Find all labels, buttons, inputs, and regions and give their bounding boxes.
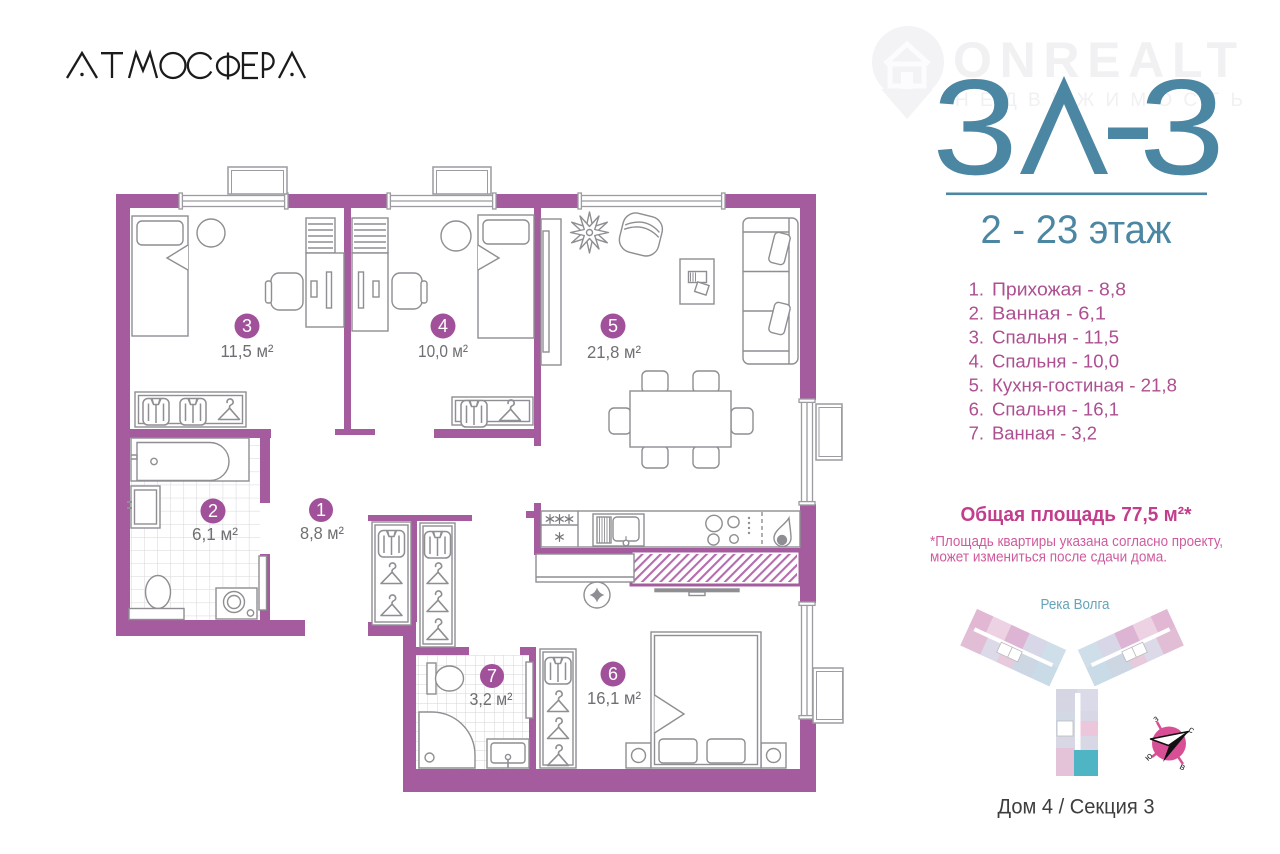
svg-text:Дом 4 / Секция 3: Дом 4 / Секция 3: [998, 795, 1155, 819]
svg-text:Общая площадь 77,5 м²*: Общая площадь 77,5 м²*: [961, 503, 1192, 526]
svg-text:Спальня - 16,1: Спальня - 16,1: [992, 399, 1119, 420]
svg-text:6: 6: [608, 664, 618, 684]
svg-text:8,8 м²: 8,8 м²: [300, 523, 344, 543]
svg-text:1: 1: [316, 500, 326, 520]
svg-text:3: 3: [932, 51, 1018, 203]
svg-text:может измениться после сдачи д: может измениться после сдачи дома.: [930, 550, 1167, 566]
svg-text:10,0 м²: 10,0 м²: [418, 341, 468, 361]
svg-text:Спальня - 11,5: Спальня - 11,5: [992, 327, 1119, 348]
svg-text:5: 5: [608, 316, 618, 336]
svg-text:*Площадь квартиры указана согл: *Площадь квартиры указана согласно проек…: [930, 534, 1223, 550]
svg-text:2.: 2.: [969, 303, 984, 324]
svg-text:6,1 м²: 6,1 м²: [192, 524, 238, 544]
svg-text:3: 3: [1139, 51, 1225, 203]
svg-text:3: 3: [242, 316, 252, 336]
svg-text:21,8 м²: 21,8 м²: [587, 342, 641, 362]
svg-text:3.: 3.: [969, 327, 984, 348]
svg-text:Река Волга: Река Волга: [1041, 597, 1111, 613]
svg-text:4.: 4.: [969, 351, 984, 372]
svg-text:1.: 1.: [969, 279, 984, 300]
svg-text:3,2 м²: 3,2 м²: [470, 689, 513, 709]
svg-text:Спальня - 10,0: Спальня - 10,0: [992, 351, 1119, 372]
svg-text:4: 4: [438, 316, 448, 336]
svg-text:Ванная - 3,2: Ванная - 3,2: [992, 423, 1097, 444]
svg-text:6.: 6.: [969, 399, 984, 420]
svg-text:5.: 5.: [969, 375, 984, 396]
svg-text:Ванная - 6,1: Ванная - 6,1: [992, 303, 1106, 324]
svg-text:7.: 7.: [969, 423, 984, 444]
svg-text:Кухня-гостиная - 21,8: Кухня-гостиная - 21,8: [992, 375, 1177, 396]
svg-text:7: 7: [487, 666, 497, 686]
svg-text:16,1 м²: 16,1 м²: [587, 688, 641, 708]
svg-text:Прихожая - 8,8: Прихожая - 8,8: [992, 279, 1126, 300]
svg-text:2 - 23 этаж: 2 - 23 этаж: [981, 208, 1172, 252]
svg-text:2: 2: [208, 501, 218, 521]
svg-text:11,5 м²: 11,5 м²: [221, 341, 274, 361]
